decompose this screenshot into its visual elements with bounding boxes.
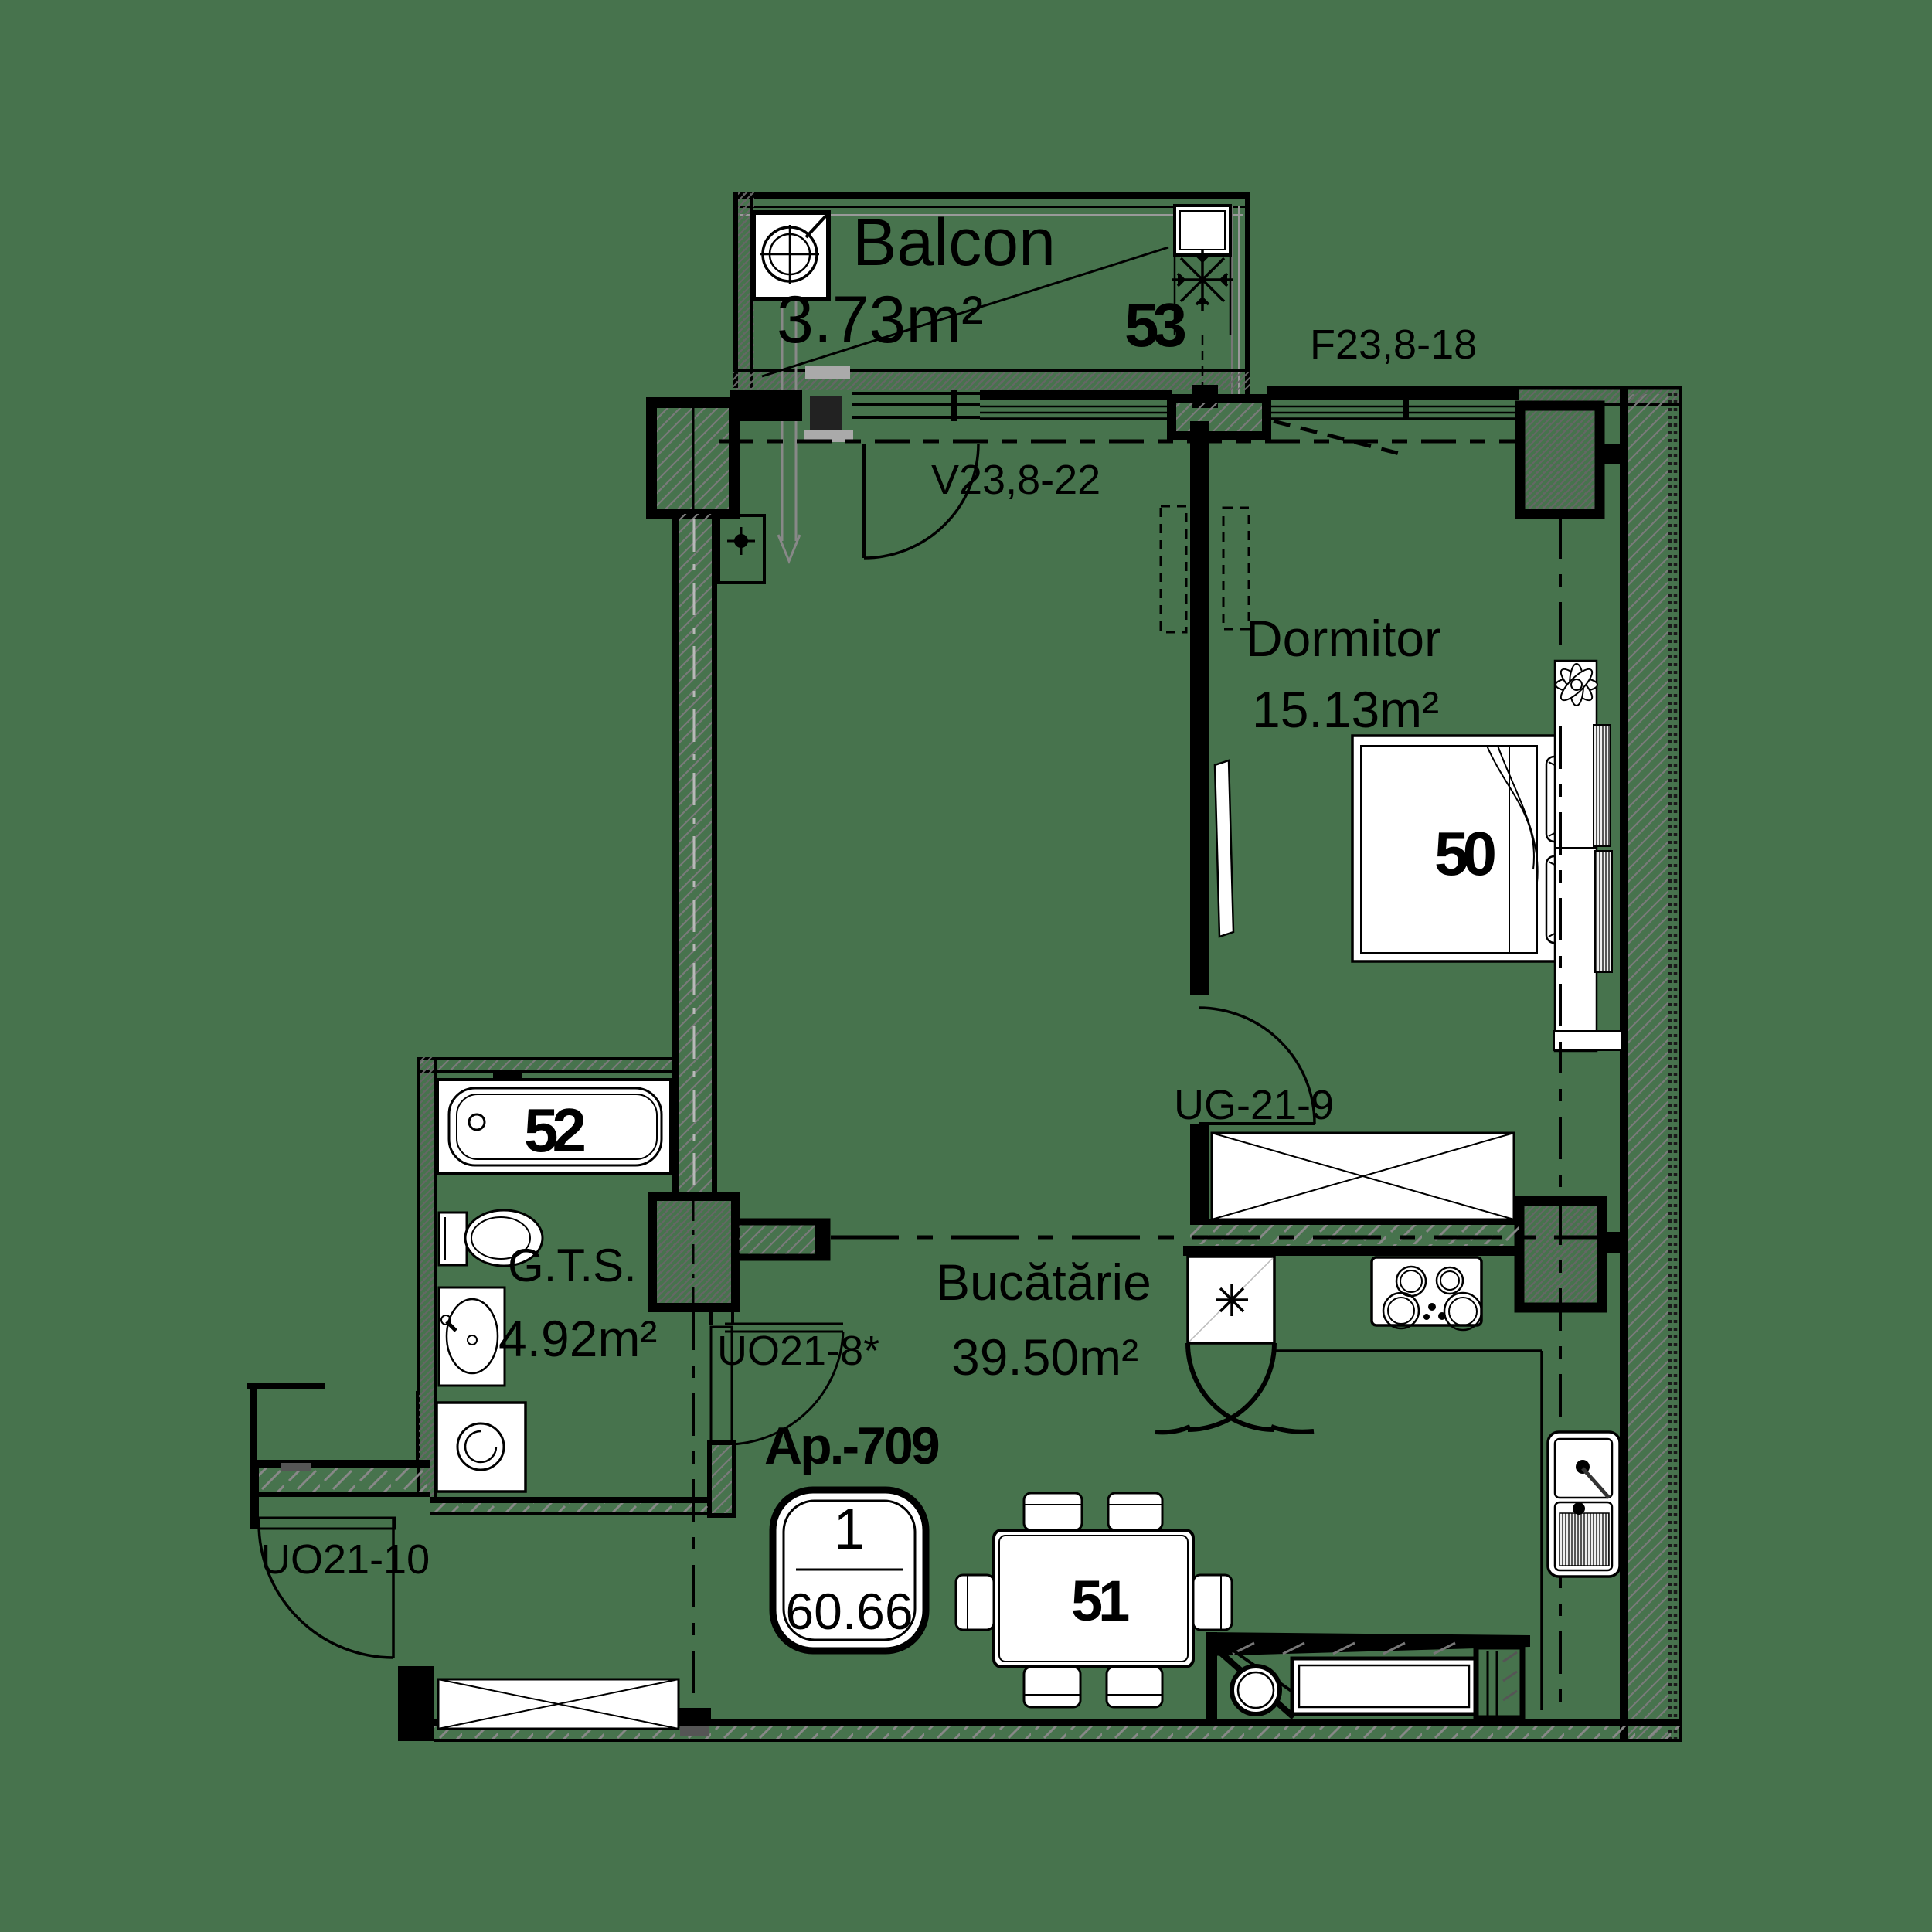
svg-text:52: 52: [524, 1096, 584, 1165]
svg-text:60.66: 60.66: [785, 1583, 913, 1640]
svg-text:UO21-10: UO21-10: [260, 1536, 430, 1583]
svg-text:39.50m²: 39.50m²: [951, 1328, 1138, 1386]
svg-text:UG-21-9: UG-21-9: [1174, 1082, 1334, 1128]
svg-text:15.13m²: 15.13m²: [1252, 681, 1439, 738]
svg-text:UO21-8*: UO21-8*: [717, 1328, 879, 1374]
svg-text:Dormitor: Dormitor: [1246, 610, 1441, 667]
svg-text:Balcon: Balcon: [852, 206, 1056, 280]
svg-text:Bucătărie: Bucătărie: [936, 1253, 1151, 1311]
svg-text:53: 53: [1124, 291, 1185, 359]
svg-text:3.73m²: 3.73m²: [777, 283, 984, 357]
svg-text:1: 1: [833, 1497, 865, 1561]
svg-text:Ap.-709: Ap.-709: [764, 1417, 939, 1475]
svg-text:4.92m²: 4.92m²: [498, 1310, 657, 1367]
svg-text:51: 51: [1071, 1569, 1129, 1633]
svg-text:G.T.S.: G.T.S.: [508, 1240, 637, 1291]
svg-text:V23,8-22: V23,8-22: [931, 457, 1100, 503]
svg-text:50: 50: [1434, 819, 1495, 888]
svg-text:F23,8-18: F23,8-18: [1310, 321, 1477, 368]
